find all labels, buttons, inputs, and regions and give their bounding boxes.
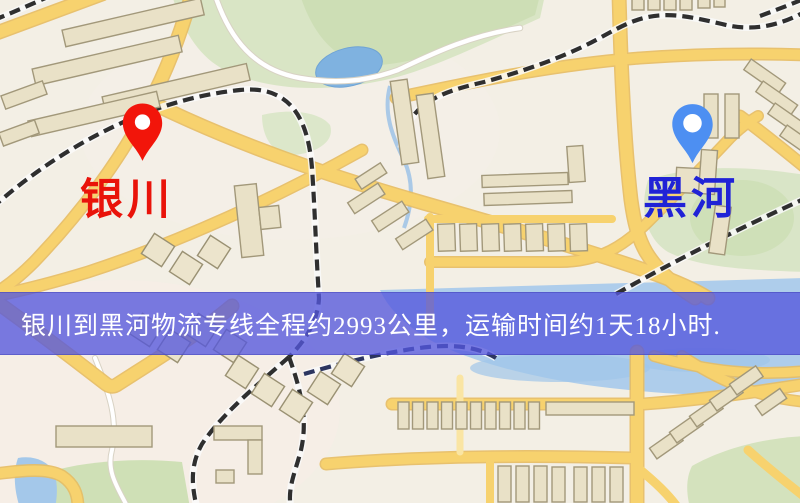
- route-info-text: 银川到黑河物流专线全程约2993公里，运输时间约1天18小时.: [21, 306, 721, 342]
- map-background: [0, 0, 800, 503]
- route-info-banner: 银川到黑河物流专线全程约2993公里，运输时间约1天18小时.: [0, 292, 800, 355]
- red-map-pin-icon: [120, 102, 165, 168]
- origin-pin[interactable]: [120, 102, 165, 168]
- blue-map-pin-icon: [669, 103, 716, 170]
- logistics-route-map: 银川 黑河 银川到黑河物流专线全程约2993公里，运输时间约1天18小时.: [0, 0, 800, 503]
- origin-city-label: 银川: [80, 179, 174, 222]
- destination-city-label: 黑河: [643, 177, 739, 221]
- destination-pin[interactable]: [669, 103, 716, 170]
